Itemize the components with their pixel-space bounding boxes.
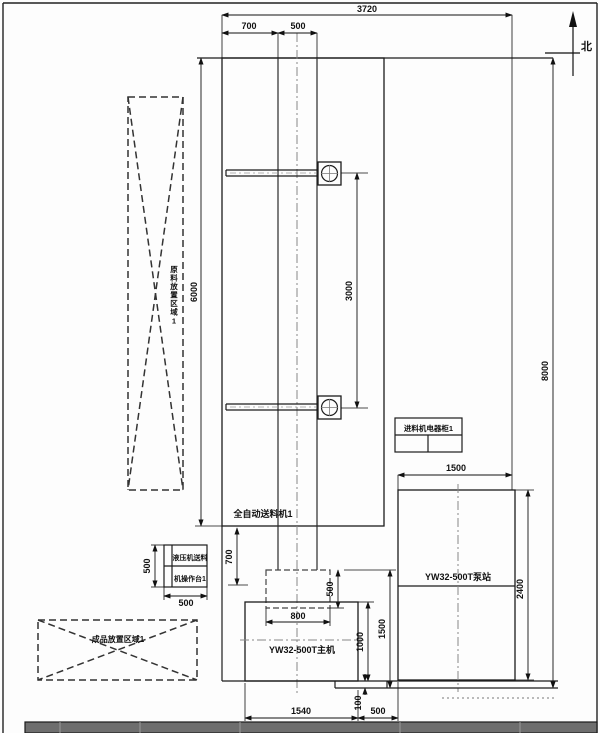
raw-material-area-label: 原料放置区域1	[169, 265, 178, 326]
dim-offset-left	[222, 33, 278, 58]
dim-press-depth-text: 1000	[355, 632, 365, 652]
dim-press-pump-gap-text: 500	[370, 706, 385, 716]
dim-overall-height-text: 8000	[540, 361, 550, 381]
feeder-column	[278, 33, 317, 695]
dim-overall-width-text: 3720	[357, 4, 377, 14]
dim-offset-left-text: 700	[241, 21, 256, 31]
operator-console-label-1: 液压机送料	[173, 553, 208, 562]
main-press-label: YW32-500T主机	[269, 644, 335, 655]
finished-goods-area	[38, 620, 197, 680]
dim-slide-depth-text: 500	[325, 581, 335, 596]
dim-feeder-zone-height-text: 6000	[189, 282, 199, 302]
dim-overall-width	[222, 15, 512, 490]
north-arrowhead	[569, 11, 577, 27]
finished-goods-area-label: 成品放置区域1	[92, 634, 145, 644]
cad-layout-drawing: 北 原料放置区域1 全自动送料机1	[0, 0, 600, 733]
dim-feeder-zone-height	[195, 58, 222, 526]
dim-arm-spacing-text: 3000	[344, 281, 354, 301]
feeder-label: 全自动送料机1	[232, 508, 292, 519]
swing-arm-1	[226, 162, 341, 185]
dim-console-depth-text: 500	[142, 558, 152, 573]
dim-press-width-text: 1540	[291, 706, 311, 716]
drawing-canvas: 北 原料放置区域1 全自动送料机1	[0, 0, 600, 733]
operator-console-label-2: 机操作台1	[174, 574, 206, 583]
dim-column-width-text: 500	[290, 21, 305, 31]
dim-press-total-depth	[344, 570, 396, 688]
dim-console-depth	[151, 545, 164, 587]
feeder-enclosure	[222, 58, 384, 526]
pump-station	[398, 490, 515, 680]
electrical-cabinet-label: 进料机电器柜1	[404, 423, 453, 433]
dim-pump-depth-text: 2400	[515, 579, 525, 599]
dim-press-total-depth-text: 1500	[377, 619, 387, 639]
dim-press-offset-text: 700	[224, 549, 234, 564]
bottom-wall	[25, 722, 597, 733]
pump-station-label: YW32-500T泵站	[425, 571, 491, 582]
north-label: 北	[581, 39, 592, 53]
dim-console-width-text: 500	[178, 598, 193, 608]
dim-pump-width	[398, 475, 512, 490]
dim-pump-width-text: 1500	[446, 463, 466, 473]
north-arrow: 北	[545, 11, 592, 76]
swing-arm-2	[226, 396, 341, 419]
dim-slide-width-text: 800	[290, 611, 305, 621]
sheet-frame	[3, 3, 597, 733]
